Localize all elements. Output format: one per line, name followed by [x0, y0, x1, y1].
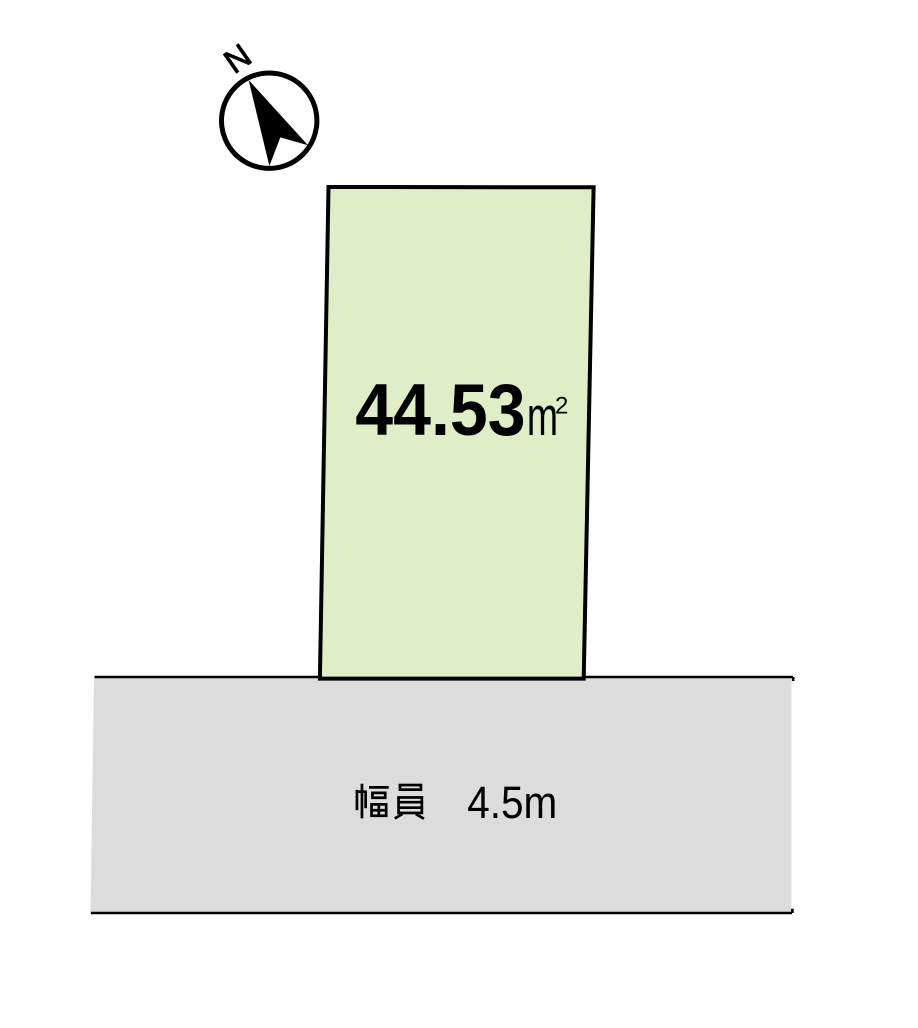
svg-text:2: 2 — [555, 393, 568, 420]
svg-text:44.53: 44.53 — [355, 369, 525, 451]
svg-text:m: m — [527, 385, 558, 447]
svg-text:4.5m: 4.5m — [467, 778, 557, 828]
